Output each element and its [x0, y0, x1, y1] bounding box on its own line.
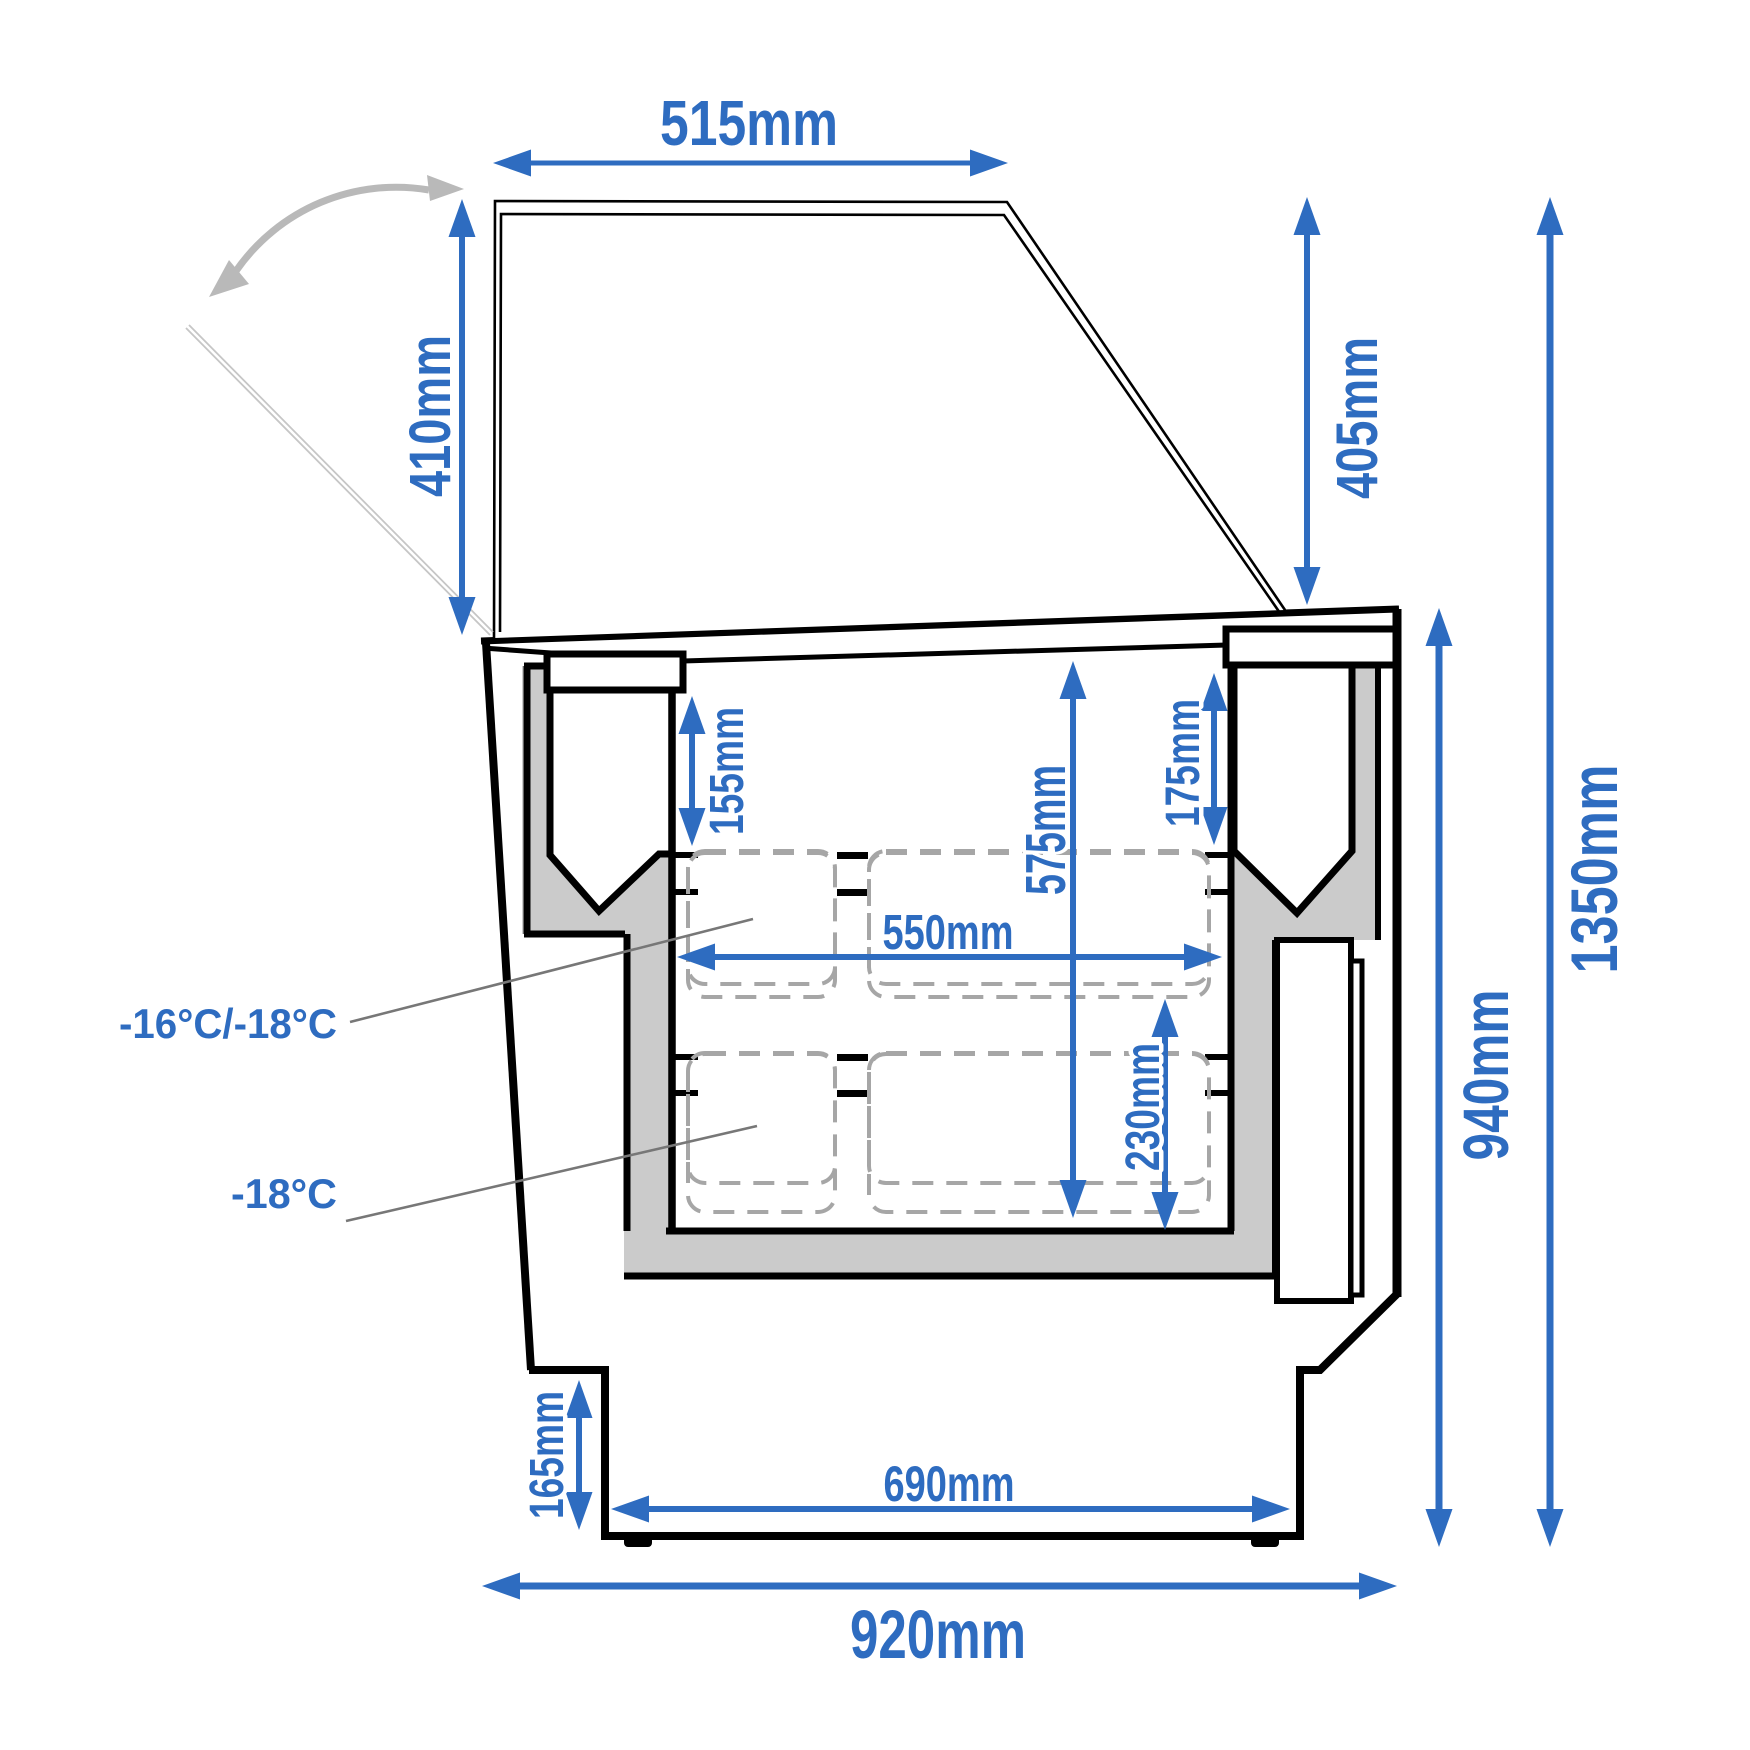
svg-text:515mm: 515mm: [660, 87, 838, 159]
svg-text:575mm: 575mm: [1014, 765, 1078, 895]
svg-text:410mm: 410mm: [398, 335, 463, 497]
svg-text:230mm: 230mm: [1117, 1043, 1170, 1171]
svg-text:940mm: 940mm: [1450, 990, 1522, 1161]
svg-text:690mm: 690mm: [884, 1456, 1015, 1512]
svg-text:920mm: 920mm: [850, 1596, 1026, 1673]
svg-text:405mm: 405mm: [1325, 337, 1390, 499]
svg-text:-16°C/-18°C: -16°C/-18°C: [119, 1000, 337, 1047]
svg-text:-18°C: -18°C: [231, 1170, 337, 1217]
svg-text:550mm: 550mm: [883, 906, 1014, 960]
svg-text:155mm: 155mm: [701, 707, 754, 835]
svg-text:175mm: 175mm: [1157, 699, 1210, 827]
svg-text:1350mm: 1350mm: [1557, 765, 1631, 974]
svg-text:165mm: 165mm: [521, 1391, 574, 1519]
